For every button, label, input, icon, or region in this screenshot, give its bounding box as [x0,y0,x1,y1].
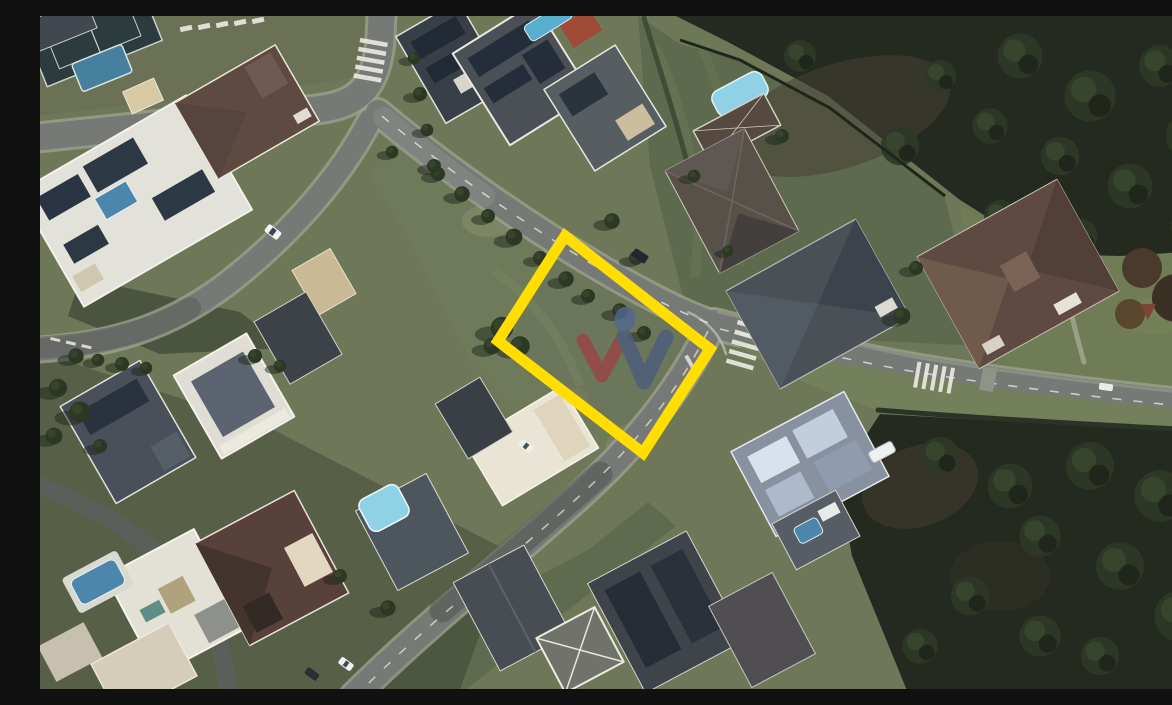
forest-tree [924,60,956,92]
forest-tree [1066,442,1114,490]
forest-tree [1081,637,1119,675]
forest-tree [784,40,816,72]
satellite-photo[interactable] [40,16,1172,689]
forest-tree [1096,542,1144,590]
forest-tree [998,34,1043,79]
forest-tree [1108,164,1153,209]
forest-tree [1019,515,1061,557]
forest-tree [902,628,937,663]
forest-tree [881,127,919,165]
forest-tree [988,464,1033,509]
forest-tree [972,108,1007,143]
forest-tree [1019,615,1061,657]
forest-tree [1041,137,1079,175]
forest-tree [921,437,959,475]
forest-tree [1064,70,1115,121]
forest-tree [951,577,989,615]
